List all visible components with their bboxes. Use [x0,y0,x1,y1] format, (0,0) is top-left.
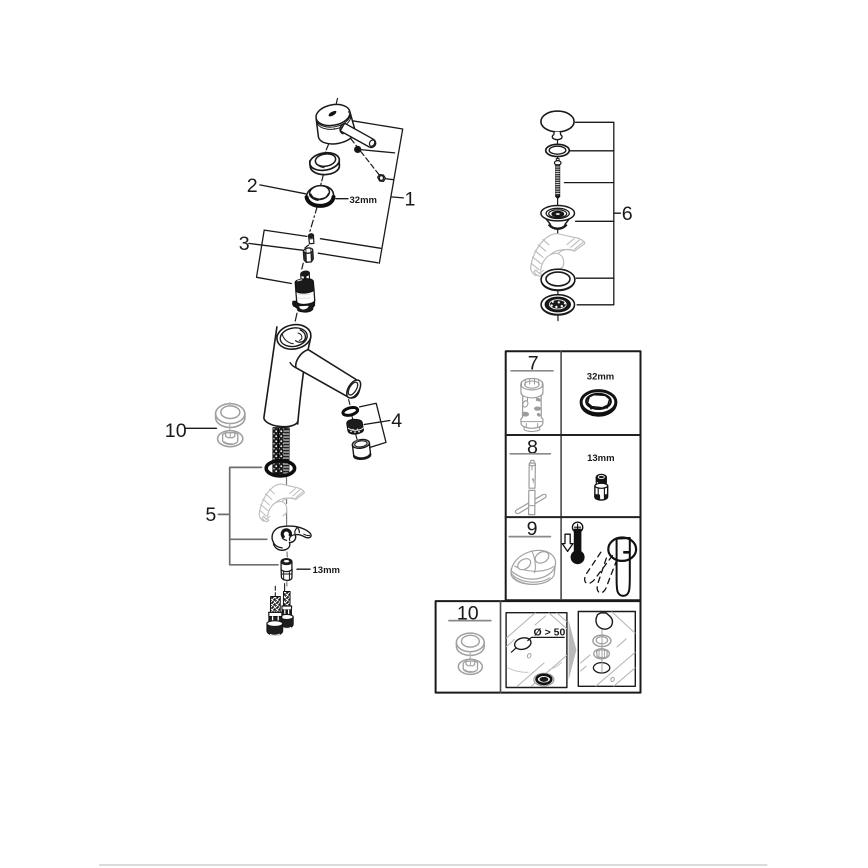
svg-text:10: 10 [165,420,187,442]
svg-text:6: 6 [622,203,633,225]
svg-text:13mm: 13mm [587,453,614,464]
svg-text:Ø > 50: Ø > 50 [534,627,566,639]
svg-text:4: 4 [391,410,402,432]
svg-text:2: 2 [247,175,258,197]
svg-text:1: 1 [405,189,416,211]
svg-text:32mm: 32mm [350,195,377,206]
svg-text:3: 3 [239,233,250,255]
svg-text:5: 5 [205,504,216,526]
svg-text:8: 8 [527,436,538,458]
svg-text:13mm: 13mm [313,565,340,576]
svg-text:32mm: 32mm [587,372,614,383]
